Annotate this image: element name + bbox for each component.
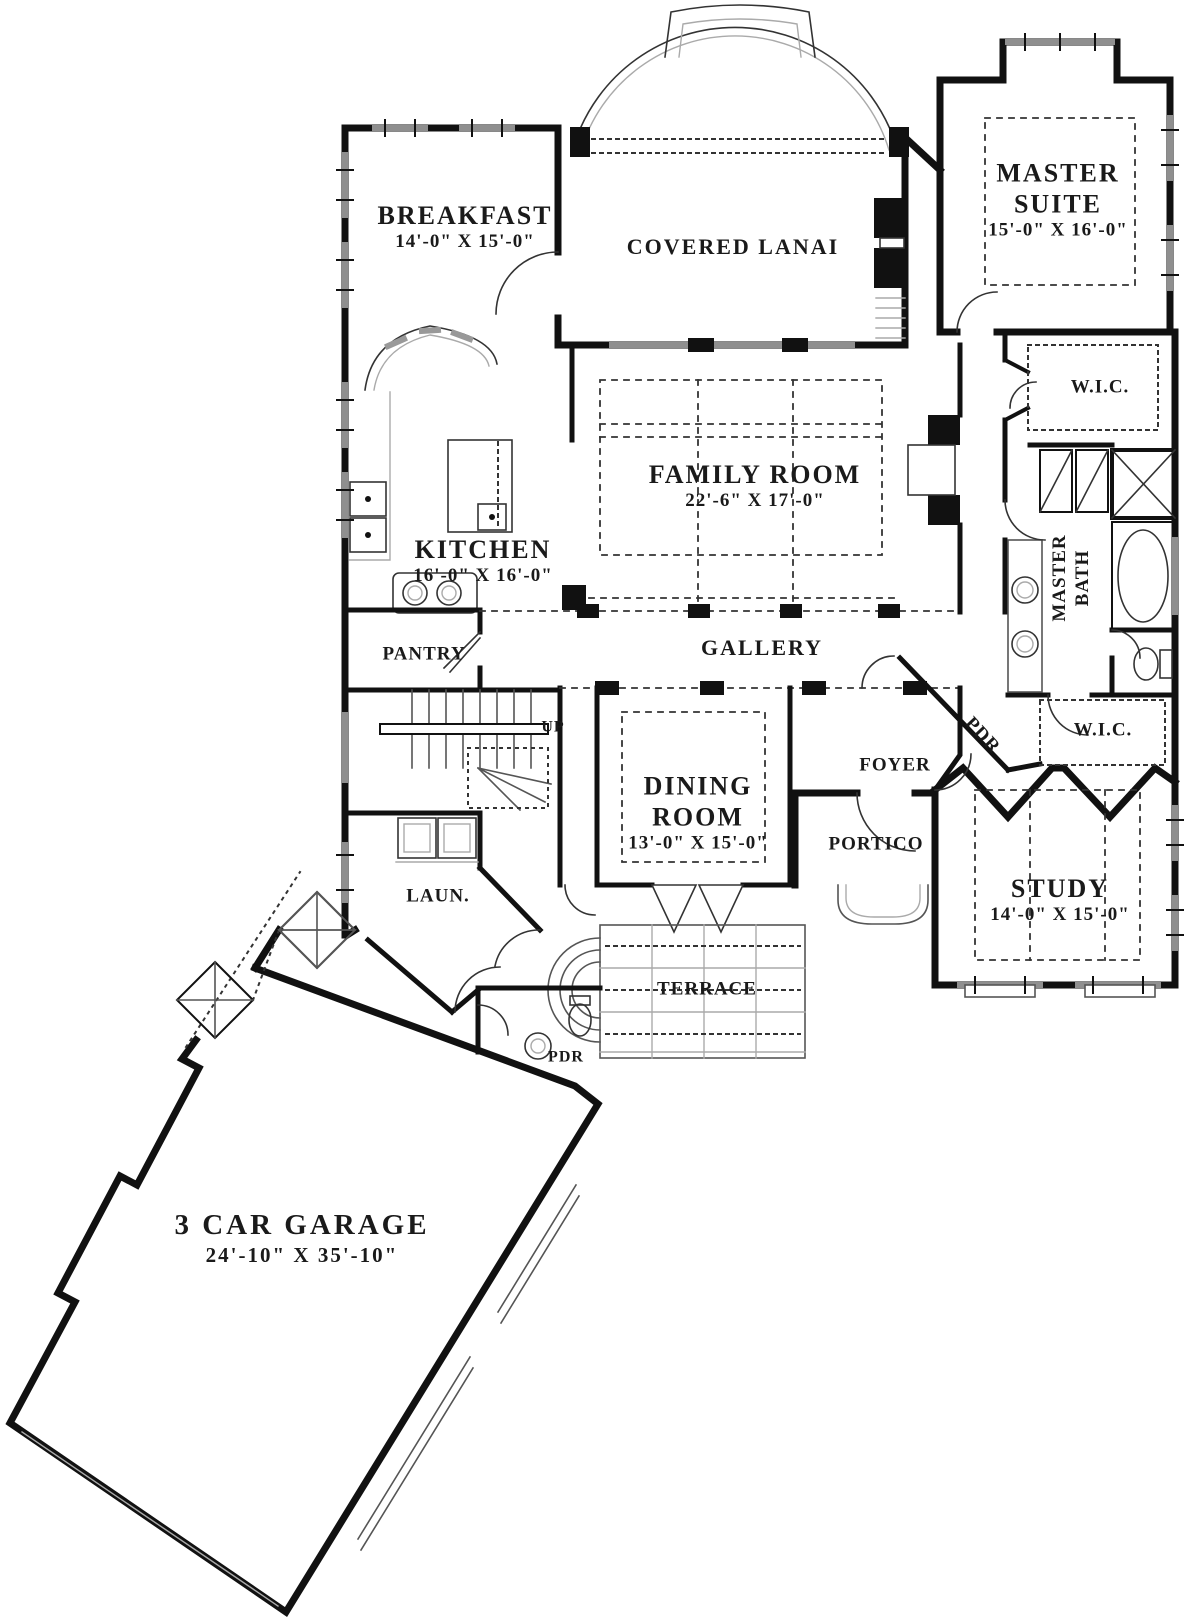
room-label-covered-lanai: COVERED LANAI [627, 234, 839, 260]
family-fireplace [908, 345, 960, 612]
mud-hall [368, 930, 540, 1012]
lanai-window-wall [612, 338, 852, 352]
vanity-sinks [1008, 540, 1042, 692]
room-label-gallery: GALLERY [701, 635, 823, 661]
room-label-breakfast: BREAKFAST 14'-0" X 15'-0" [378, 200, 553, 254]
shower-icon [1112, 450, 1175, 518]
room-label-terrace: TERRACE [657, 979, 757, 1002]
room-label-wic-master: W.I.C. [1071, 377, 1130, 400]
room-label-powder-rear: PDR [548, 1047, 584, 1066]
room-label-garage: 3 CAR GARAGE 24'-10" X 35'-10" [174, 1208, 429, 1268]
room-label-master-bath: MASTER BATH [1049, 530, 1095, 626]
bathtub-icon [1112, 522, 1175, 630]
floor-plan: BREAKFAST 14'-0" X 15'-0" COVERED LANAI … [0, 0, 1200, 1622]
room-label-pantry: PANTRY [382, 644, 465, 667]
floor-plan-drawing [0, 0, 1200, 1622]
bay-window-diamonds [177, 892, 355, 1038]
room-label-study: STUDY 14'-0" X 15'-0" [990, 873, 1130, 927]
portico-steps [838, 885, 928, 924]
linen-cabinet [1040, 450, 1108, 512]
room-label-portico: PORTICO [828, 834, 923, 857]
room-label-stairs-up: UP [541, 717, 564, 736]
laundry [345, 813, 540, 930]
kitchen-island [448, 440, 512, 532]
foyer-walls [857, 656, 1040, 851]
room-label-family-room: FAMILY ROOM 22'-6" X 17'-0" [649, 459, 861, 513]
room-label-dining-room: DINING ROOM 13'-0" X 15'-0" [618, 770, 778, 855]
breakfast-door-arc [496, 252, 558, 314]
room-label-master-suite: MASTER SUITE 15'-0" X 16'-0" [966, 157, 1151, 242]
lanai-dome [570, 5, 909, 157]
room-label-wic-hall: W.I.C. [1074, 720, 1133, 743]
washer-dryer-icon [398, 818, 476, 858]
room-label-foyer: FOYER [859, 755, 931, 778]
room-label-kitchen: KITCHEN 16'-0" X 16'-0" [413, 534, 553, 588]
stairs [380, 688, 560, 885]
room-label-laundry: LAUN. [406, 886, 470, 909]
